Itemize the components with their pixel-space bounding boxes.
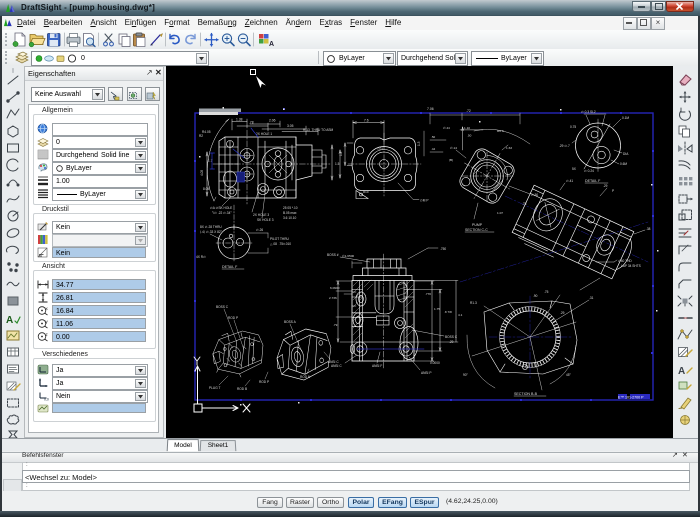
svg-text:7.6: 7.6 <box>364 119 369 123</box>
svg-text:BOSS #: BOSS # <box>327 253 339 257</box>
svg-text:DETAIL F: DETAIL F <box>222 265 238 269</box>
svg-text:A: A <box>678 366 685 377</box>
svg-text:1.5: 1.5 <box>335 162 340 166</box>
svg-text:1.63: 1.63 <box>506 146 512 150</box>
svg-text:△.08 .75±.010: △.08 .75±.010 <box>270 242 291 246</box>
svg-text:3.05: 3.05 <box>287 124 294 128</box>
svg-text:x: x <box>46 306 49 311</box>
svg-text:8.05: 8.05 <box>203 187 209 191</box>
svg-text:.29: .29 <box>449 340 454 344</box>
svg-text:E™ 101-2700 P: E™ 101-2700 P <box>618 396 644 400</box>
svg-text:P: P <box>612 189 614 193</box>
svg-text:y: y <box>46 319 49 324</box>
svg-text:.770: .770 <box>425 292 431 296</box>
svg-text:∅M P: ∅M P <box>420 199 428 203</box>
svg-text:ROD P: ROD P <box>228 316 238 320</box>
svg-text:.750: .750 <box>440 247 446 251</box>
svg-text:ANSI P: ANSI P <box>421 371 431 375</box>
svg-text:∅.41: ∅.41 <box>566 179 573 183</box>
svg-text:0.75: 0.75 <box>570 125 576 129</box>
svg-text:BOSS C: BOSS C <box>445 335 458 339</box>
svg-text:.38: .38 <box>646 227 651 231</box>
svg-text:R10: R10 <box>363 190 369 194</box>
svg-text:7.06: 7.06 <box>427 107 434 111</box>
svg-text:2.06: 2.06 <box>269 119 276 123</box>
svg-text:6.0900: 6.0900 <box>330 286 340 290</box>
svg-text:.75: .75 <box>522 202 527 206</box>
svg-text:.79: .79 <box>333 323 338 327</box>
svg-text:⌈.4⌉ ∅.33 X 82°: ⌈.4⌉ ∅.33 X 82° <box>200 230 223 234</box>
svg-text:1.3: 1.3 <box>417 141 421 146</box>
svg-text:1.07: 1.07 <box>497 211 503 215</box>
svg-text:°/∅ .22 ∅.34°: °/∅ .22 ∅.34° <box>212 211 232 215</box>
svg-text:∅A ∅SK HOLE: ∅A ∅SK HOLE <box>210 206 232 210</box>
svg-text:0.1M: 0.1M <box>622 116 629 120</box>
svg-text:1.4: 1.4 <box>339 151 343 156</box>
svg-text:ROD P: ROD P <box>259 380 269 384</box>
svg-text:.31: .31 <box>589 296 594 300</box>
svg-text:8X ∅.28 THRU: 8X ∅.28 THRU <box>200 225 222 229</box>
svg-text:∅.14: ∅.14 <box>450 146 457 150</box>
svg-text:2.736: 2.736 <box>329 296 337 300</box>
svg-text:SECTION C-C: SECTION C-C <box>465 228 488 232</box>
svg-text:R.13 THRU TO ASM: R.13 THRU TO ASM <box>303 128 334 132</box>
svg-text:4X R∅: 4X R∅ <box>196 255 206 259</box>
svg-text:B.05 max: B.05 max <box>283 211 297 215</box>
svg-text:T.01: T.01 <box>377 147 383 151</box>
svg-text:.8 7/8: .8 7/8 <box>444 310 452 314</box>
svg-text:.78: .78 <box>249 121 254 125</box>
svg-text:∅ 0.24: ∅ 0.24 <box>584 169 594 173</box>
svg-text:.50: .50 <box>431 135 436 139</box>
svg-text:.72: .72 <box>466 109 471 113</box>
svg-text:BOSS A: BOSS A <box>284 320 297 324</box>
svg-text:∅40 THD: ∅40 THD <box>618 259 632 263</box>
svg-text:ROD N: ROD N <box>300 375 311 379</box>
svg-text:4.1: 4.1 <box>458 313 463 317</box>
svg-text:LAP 34 SHTS: LAP 34 SHTS <box>621 264 641 268</box>
svg-text:.50: .50 <box>467 134 472 138</box>
svg-text:.29: .29 <box>560 311 565 315</box>
svg-text:ANSI C: ANSI C <box>328 360 339 364</box>
svg-text:ROD B: ROD B <box>237 387 247 391</box>
svg-text:SK HOLE 3: SK HOLE 3 <box>257 218 274 222</box>
svg-text:4.05: 4.05 <box>200 170 204 176</box>
svg-text:∅.44: ∅.44 <box>443 126 450 130</box>
svg-text:R2: R2 <box>199 134 203 138</box>
svg-text:.29: .29 <box>603 184 608 188</box>
svg-text:.29 ∅.7: .29 ∅.7 <box>559 144 570 148</box>
svg-text:1.7: 1.7 <box>208 159 213 163</box>
svg-text:A: A <box>269 41 274 48</box>
svg-text:∅ 0.3 SL2: ∅ 0.3 SL2 <box>581 110 596 114</box>
svg-text:A: A <box>6 315 13 326</box>
svg-text:∅.26: ∅.26 <box>256 228 263 232</box>
svg-text:1.10: 1.10 <box>464 126 470 130</box>
svg-text:0,0: 0,0 <box>44 398 49 402</box>
svg-text:3.6 10.10: 3.6 10.10 <box>283 216 297 220</box>
svg-text:.75: .75 <box>544 290 549 294</box>
svg-text:SECTION B-B: SECTION B-B <box>514 392 538 396</box>
svg-text:25 05 *.10: 25 05 *.10 <box>283 206 298 210</box>
svg-text:ANSI C: ANSI C <box>331 364 342 368</box>
svg-text:DETAIL F: DETAIL F <box>585 179 601 183</box>
svg-text:(B): (B) <box>449 158 453 162</box>
svg-text:2X HOLE 3: 2X HOLE 3 <box>253 213 269 217</box>
svg-text:PUMP: PUMP <box>472 223 483 227</box>
svg-text:2X HOLE 1: 2X HOLE 1 <box>256 132 272 136</box>
svg-text:PILOT THRU: PILOT THRU <box>270 237 290 241</box>
svg-text:.90: .90 <box>533 294 538 298</box>
svg-text:z: z <box>46 332 49 337</box>
svg-text:90°: 90° <box>463 373 469 377</box>
svg-text:5X: 5X <box>572 167 577 171</box>
svg-text:PLUG T: PLUG T <box>209 386 221 390</box>
svg-text:0.0000: 0.0000 <box>430 361 440 365</box>
svg-text:1.38: 1.38 <box>236 118 243 122</box>
svg-text:DIA: DIA <box>623 152 629 156</box>
svg-text:ANSI F: ANSI F <box>372 364 382 368</box>
svg-text:0.6M: 0.6M <box>620 162 627 166</box>
svg-text:1.75: 1.75 <box>434 307 440 311</box>
svg-text:BOSS C: BOSS C <box>216 305 229 309</box>
svg-text:45°: 45° <box>566 373 572 377</box>
svg-text:∅1.6500: ∅1.6500 <box>342 254 354 258</box>
svg-text:R1.3: R1.3 <box>470 301 477 305</box>
svg-text:R4.05: R4.05 <box>202 130 211 134</box>
svg-text:.44: .44 <box>431 147 436 151</box>
